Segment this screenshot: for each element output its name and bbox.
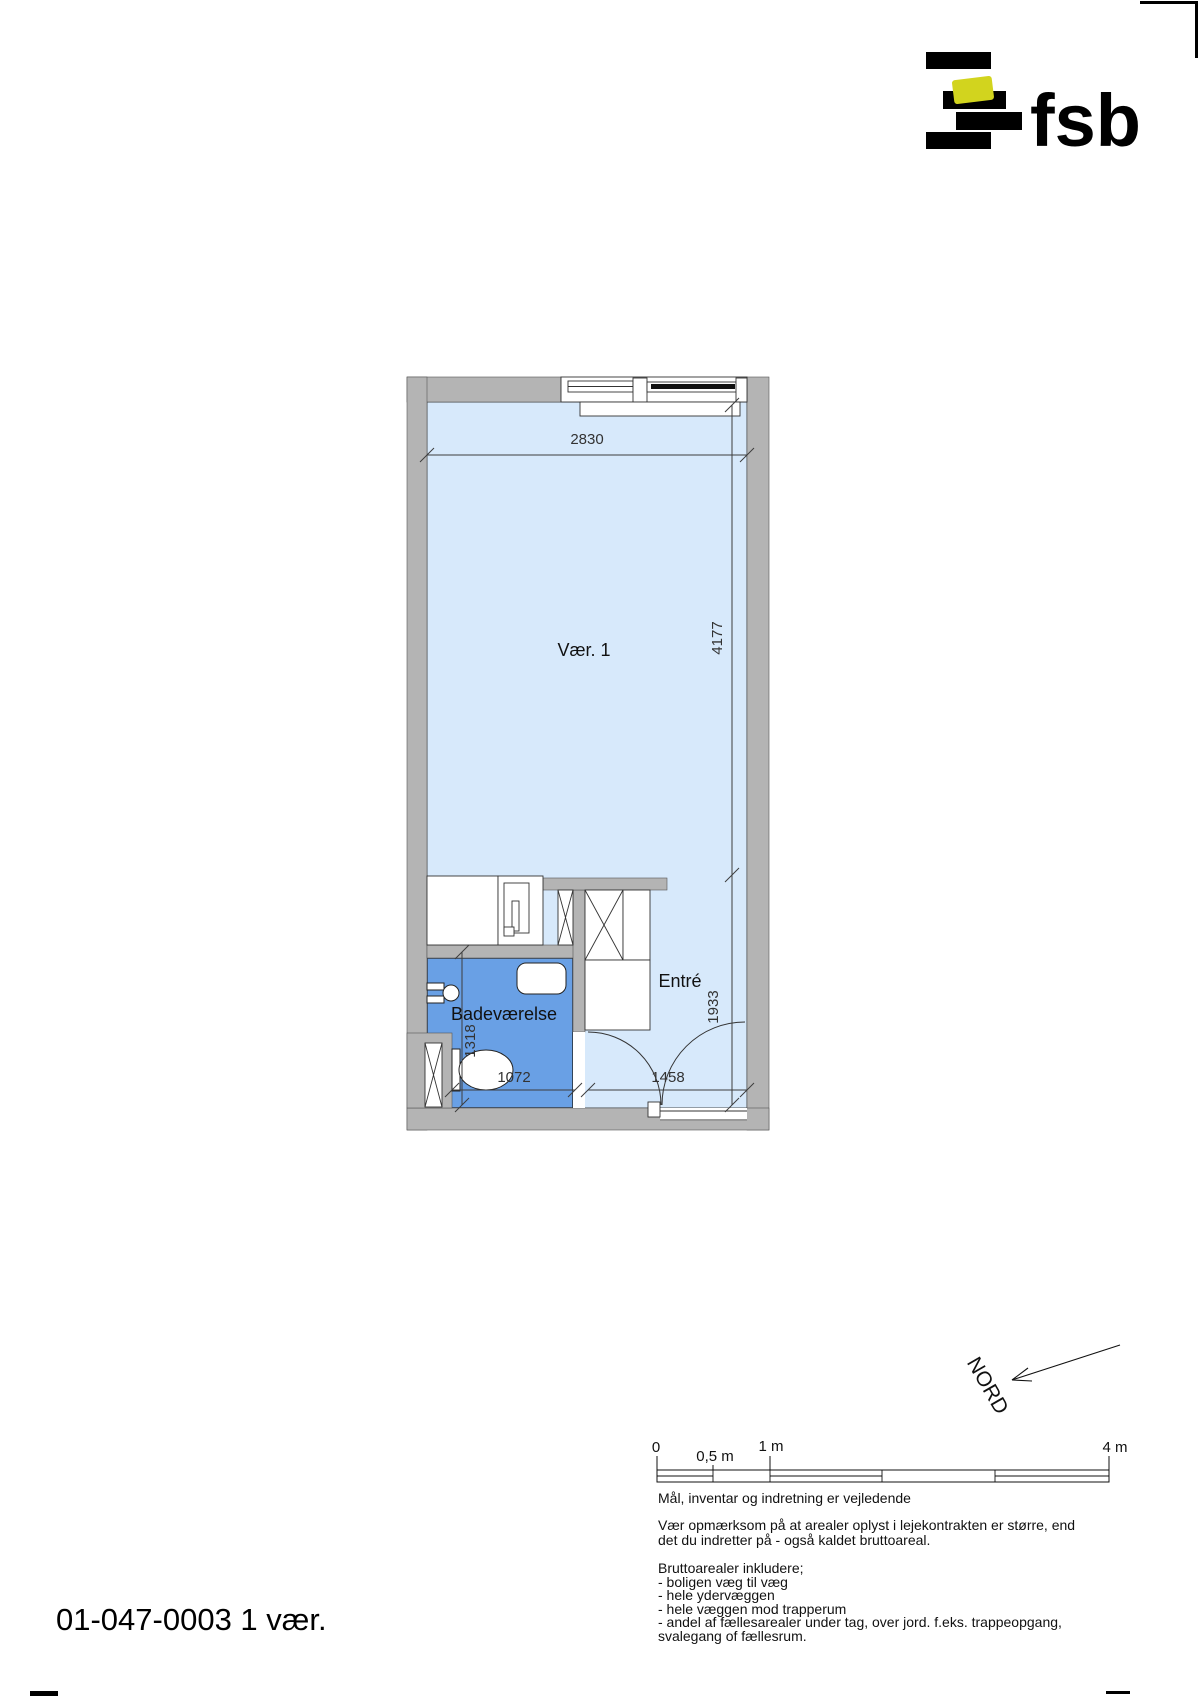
scale-bar: 0 0,5 m 1 m 4 m bbox=[652, 1438, 1128, 1482]
kitchen bbox=[427, 876, 543, 945]
window-sill bbox=[580, 402, 740, 416]
wall-right bbox=[747, 377, 769, 1130]
note-brutto-title: Bruttoarealer inkludere; bbox=[658, 1561, 804, 1575]
wall-bath-right bbox=[573, 890, 585, 1032]
window-end-post bbox=[736, 378, 747, 402]
compass: NORD bbox=[962, 1345, 1120, 1418]
kitchen-tap bbox=[512, 901, 519, 931]
scale-bar-labels: 0 0,5 m 1 m 4 m bbox=[652, 1438, 1128, 1465]
entrance-opening bbox=[660, 1108, 747, 1121]
wall-left bbox=[407, 377, 427, 1130]
bathroom-label: Badeværelse bbox=[451, 1004, 557, 1024]
dim-bath-vert-label: 1318 bbox=[462, 1024, 479, 1057]
wardrobe-plain bbox=[623, 890, 650, 960]
entre-label: Entré bbox=[658, 971, 701, 991]
dim-right-main-label: 4177 bbox=[709, 621, 726, 654]
wall-bulkhead bbox=[543, 878, 667, 890]
dim-entre-horiz-label: 1458 bbox=[651, 1069, 684, 1086]
window-top bbox=[561, 377, 747, 416]
washbasin-bracket-1 bbox=[427, 983, 444, 990]
washbasin-bracket-2 bbox=[427, 996, 444, 1003]
shower-tray bbox=[517, 963, 566, 994]
compass-label: NORD bbox=[962, 1353, 1013, 1418]
kitchen-counter bbox=[427, 876, 498, 945]
drawing-page: fsb bbox=[0, 0, 1200, 1697]
washbasin-bowl bbox=[443, 985, 459, 1001]
wall-bath-top bbox=[427, 945, 585, 958]
entre-closet bbox=[585, 960, 650, 1030]
scale-label-1m: 1 m bbox=[758, 1438, 783, 1455]
kitchen-tap-base bbox=[504, 927, 514, 936]
scale-label-4m: 4 m bbox=[1102, 1439, 1127, 1456]
dim-top-label: 2830 bbox=[570, 431, 603, 448]
wall-top-left bbox=[407, 377, 561, 402]
scale-label-0: 0 bbox=[652, 1439, 660, 1456]
compass-arrow bbox=[1012, 1345, 1120, 1381]
window-mullion bbox=[633, 378, 647, 402]
dim-bath-horiz-label: 1072 bbox=[497, 1069, 530, 1086]
dim-right-entre-label: 1933 bbox=[705, 990, 722, 1023]
entrance-door-frame bbox=[648, 1102, 660, 1117]
window-sash-right-glass bbox=[651, 384, 735, 389]
note-areas: Vær opmærksom på at arealer oplyst i lej… bbox=[658, 1518, 1075, 1547]
floorplan-canvas: 2830 4177 1933 1318 1072 1458 Vær. 1 Bad… bbox=[0, 0, 1200, 1697]
note-brutto-list: - boligen væg til væg - hele ydervæggen … bbox=[658, 1576, 1062, 1643]
plan-id: 01-047-0003 1 vær. bbox=[56, 1602, 327, 1638]
note-guideline: Mål, inventar og indretning er vejledend… bbox=[658, 1491, 911, 1505]
bath-door-opening bbox=[573, 1032, 585, 1108]
room1-label: Vær. 1 bbox=[557, 640, 610, 660]
scale-label-05m: 0,5 m bbox=[696, 1448, 734, 1465]
